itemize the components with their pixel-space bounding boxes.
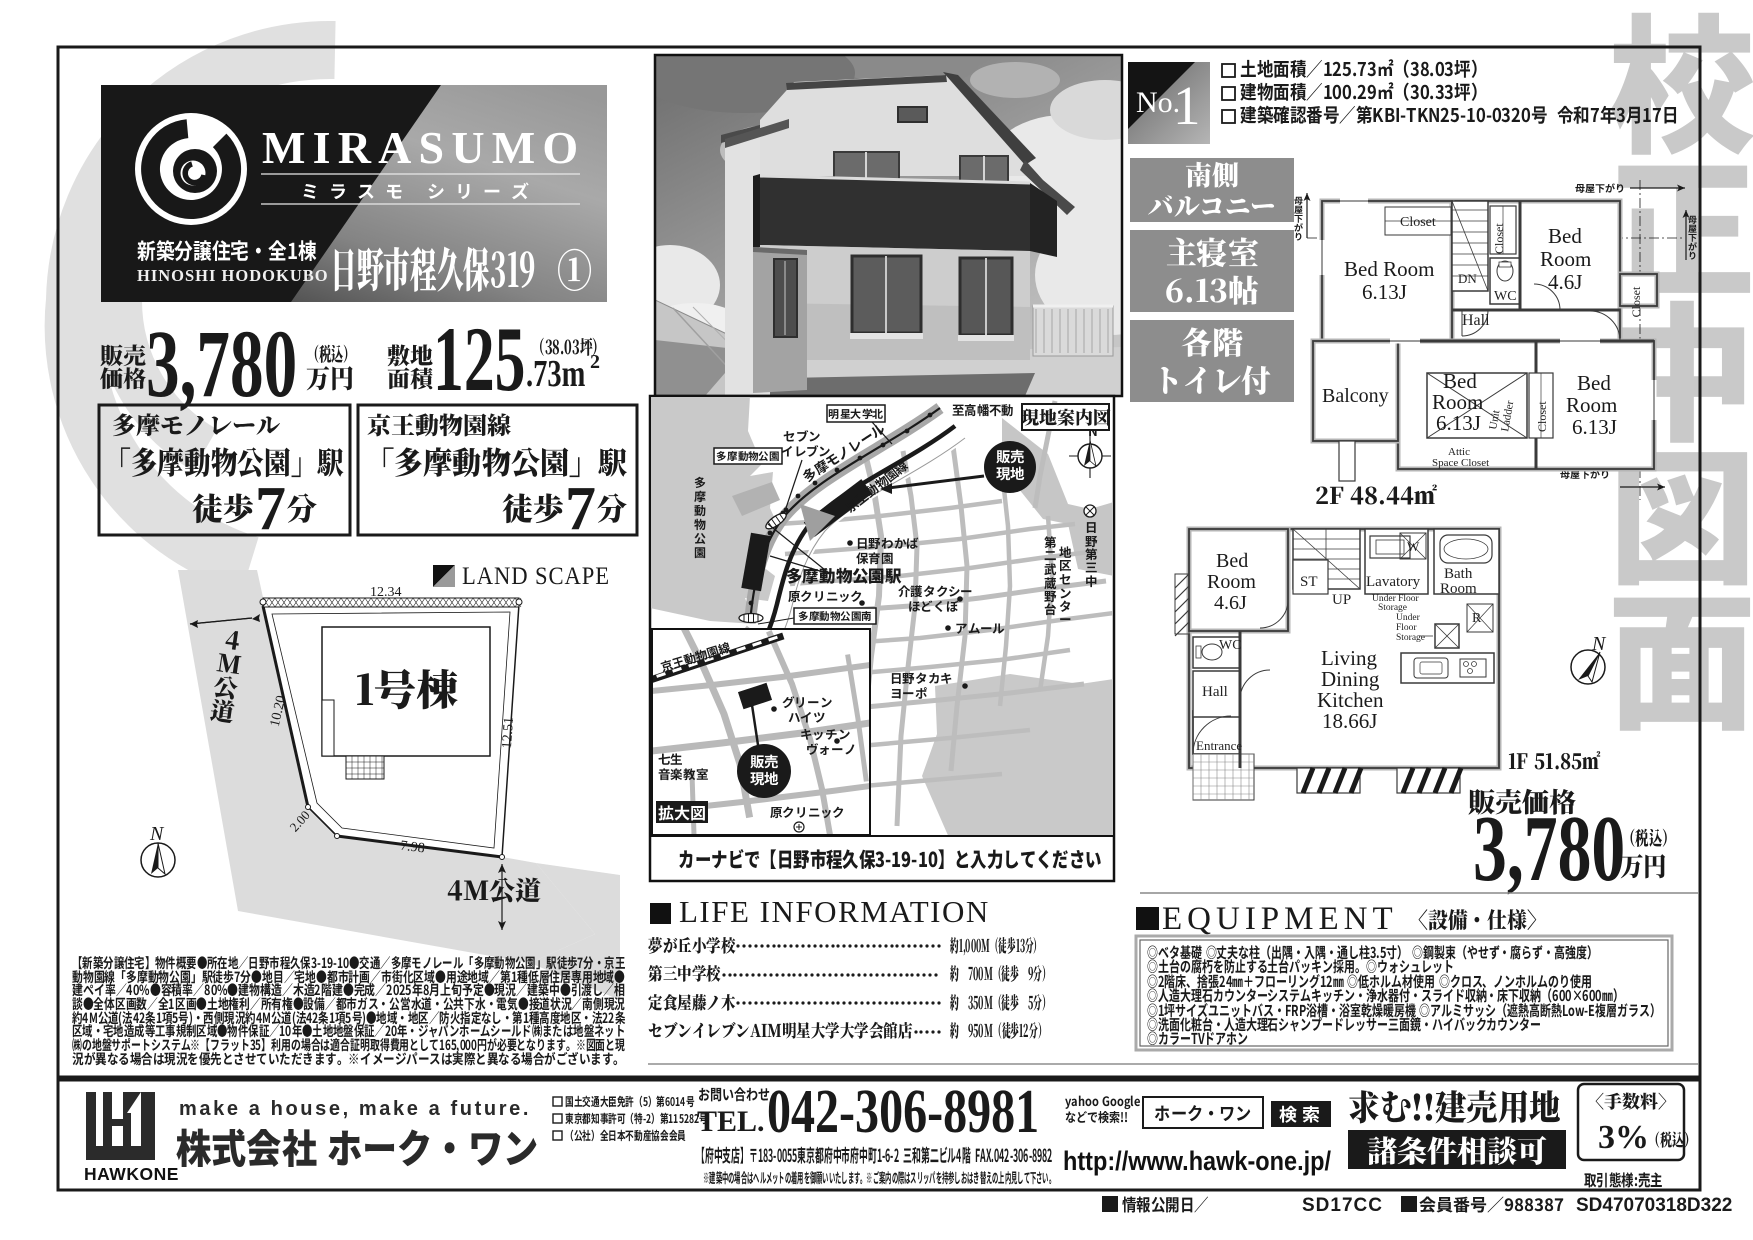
svg-text:6.13J: 6.13J (1362, 280, 1407, 304)
svg-text:SD17CC: SD17CC (1302, 1195, 1383, 1216)
svg-text:Room: Room (1566, 393, 1617, 417)
svg-text:4.6J: 4.6J (1548, 270, 1582, 294)
svg-text:6.13J: 6.13J (1572, 415, 1617, 439)
svg-text:3,780: 3,780 (1473, 796, 1625, 900)
svg-text:Closet: Closet (1492, 223, 1506, 254)
svg-text:UP: UP (1332, 592, 1351, 608)
svg-text:Balcony: Balcony (1322, 385, 1389, 407)
svg-text:Hall: Hall (1202, 684, 1228, 700)
svg-text:18.66J: 18.66J (1322, 709, 1377, 733)
svg-text:Bed Room: Bed Room (1344, 257, 1434, 281)
svg-text:LAND SCAPE: LAND SCAPE (462, 563, 610, 590)
svg-text:.73m: .73m (526, 353, 585, 395)
svg-text:Bed: Bed (1216, 550, 1248, 572)
svg-text:Lavatory: Lavatory (1366, 574, 1421, 590)
svg-text:125: 125 (433, 308, 525, 410)
svg-text:N: N (149, 823, 165, 845)
svg-text:W: W (1407, 539, 1420, 554)
svg-text:Floor: Floor (1396, 623, 1417, 633)
svg-text:DN: DN (1458, 271, 1477, 286)
svg-text:2: 2 (590, 351, 600, 373)
svg-text:4.6J: 4.6J (1214, 592, 1247, 614)
svg-text:Hall: Hall (1462, 312, 1490, 329)
svg-text:N: N (1591, 633, 1607, 655)
svg-text:Room: Room (1540, 247, 1591, 271)
svg-text:Storage: Storage (1378, 603, 1407, 613)
svg-text:HINOSHI HODOKUBO: HINOSHI HODOKUBO (137, 266, 329, 285)
svg-text:EQUIPMENT: EQUIPMENT (1162, 901, 1398, 937)
svg-text:R: R (1472, 611, 1482, 626)
svg-text:7.98: 7.98 (399, 839, 425, 857)
svg-text:Under: Under (1396, 613, 1421, 623)
svg-text:Bed: Bed (1577, 371, 1611, 395)
svg-text:3,780: 3,780 (146, 310, 297, 417)
svg-text:http://www.hawk-one.jp/: http://www.hawk-one.jp/ (1063, 1146, 1331, 1176)
svg-text:7: 7 (255, 475, 286, 543)
svg-text:HAWKONE: HAWKONE (84, 1164, 179, 1184)
svg-text:3%: 3% (1598, 1119, 1649, 1156)
svg-text:Bed: Bed (1548, 224, 1582, 248)
svg-text:1: 1 (1173, 75, 1201, 136)
svg-text:make a house, make a future.: make a house, make a future. (179, 1098, 531, 1120)
svg-text:Room: Room (1440, 581, 1477, 597)
svg-text:WC: WC (1494, 289, 1517, 304)
svg-text:TEL.: TEL. (697, 1105, 765, 1138)
svg-text:SD47070318D322: SD47070318D322 (1576, 1195, 1732, 1216)
svg-text:Storage: Storage (1396, 633, 1425, 643)
svg-text:MIRASUMO: MIRASUMO (262, 122, 585, 173)
svg-text:LIFE INFORMATION: LIFE INFORMATION (679, 894, 990, 929)
svg-text:Room: Room (1207, 571, 1256, 593)
svg-text:12.34: 12.34 (370, 585, 402, 600)
svg-text:Bath: Bath (1444, 566, 1473, 582)
svg-text:042-306-8981: 042-306-8981 (767, 1077, 1039, 1145)
svg-text:Closet: Closet (1535, 401, 1549, 432)
svg-text:7: 7 (565, 475, 596, 543)
svg-text:Space Closet: Space Closet (1432, 457, 1489, 469)
svg-text:Entrance: Entrance (1196, 738, 1242, 753)
svg-text:Closet: Closet (1629, 286, 1643, 317)
svg-text:WC: WC (1219, 638, 1242, 653)
svg-text:6.13J: 6.13J (1436, 411, 1481, 435)
svg-text:12.51: 12.51 (500, 717, 517, 749)
svg-text:Closet: Closet (1400, 215, 1436, 230)
svg-text:ST: ST (1300, 574, 1318, 590)
